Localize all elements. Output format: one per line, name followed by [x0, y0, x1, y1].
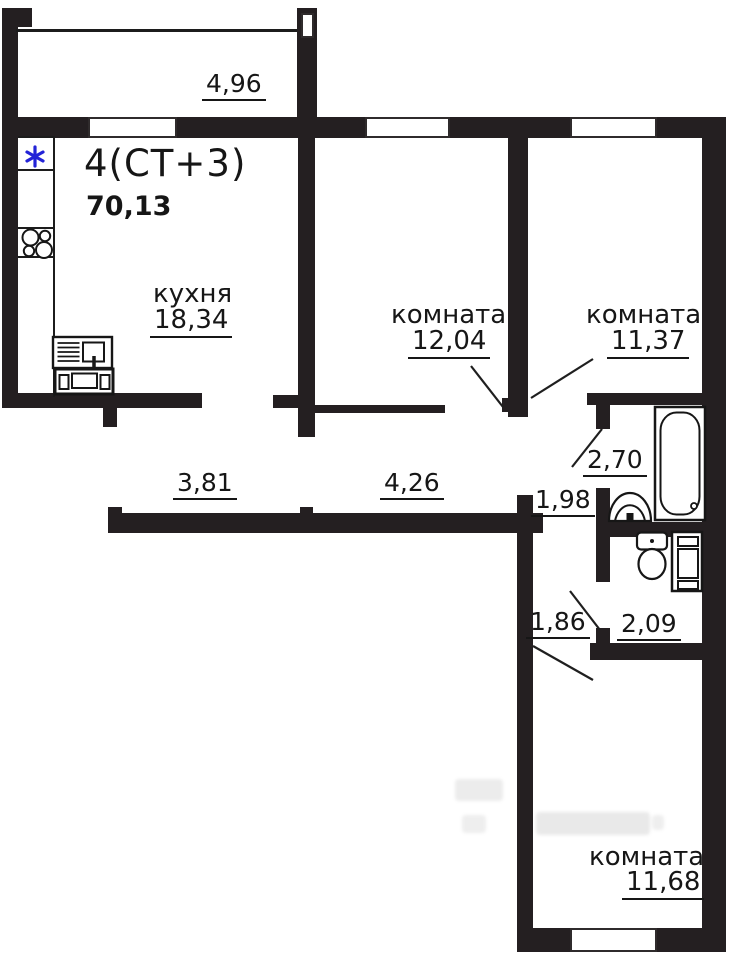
wc-dim-label: 2,09 — [617, 610, 681, 641]
watermark — [536, 812, 650, 835]
cooker-icon — [55, 369, 113, 394]
dim-value: 4,96 — [202, 70, 266, 101]
washbasin-icon — [609, 493, 651, 522]
dim-value: 1,86 — [526, 608, 590, 639]
room-area-label: 11,68 — [622, 868, 704, 900]
bath-corridor-dim-label: 1,98 — [531, 486, 595, 517]
wc-corridor-dim-label: 1,86 — [526, 608, 590, 639]
bathroom-dim-label: 2,70 — [583, 446, 647, 477]
floor-plan: 4,96 4(СТ+3) 70,13 кухня 18,34 комната 1… — [0, 0, 738, 960]
washing-machine-icon — [672, 532, 702, 591]
bathtub-icon — [655, 407, 705, 520]
watermark — [455, 779, 503, 801]
door-swing-line — [471, 366, 503, 407]
plan-title: 4(СТ+3) — [84, 143, 246, 184]
stove-burners-icon — [23, 230, 53, 259]
kitchen-sink-icon — [53, 337, 112, 368]
balcony-dim-label: 4,96 — [202, 70, 266, 101]
hallway-dim-label: 3,81 — [173, 469, 237, 500]
dim-value: 11,68 — [622, 868, 704, 900]
kitchen-area-label: 18,34 — [150, 306, 232, 338]
hallway-dim-label: 4,26 — [380, 469, 444, 500]
toilet-icon — [637, 533, 667, 580]
dim-value: 2,70 — [583, 446, 647, 477]
watermark — [462, 815, 486, 833]
dim-value: 1,98 — [531, 486, 595, 517]
dim-value: 3,81 — [173, 469, 237, 500]
dim-value: 18,34 — [150, 306, 232, 338]
asterisk-icon — [27, 147, 43, 166]
dim-value: 11,37 — [607, 327, 689, 359]
dim-value: 12,04 — [408, 327, 490, 359]
total-area-label: 70,13 — [86, 192, 171, 222]
door-swing-line — [531, 359, 593, 398]
dim-value: 4,26 — [380, 469, 444, 500]
dim-value: 2,09 — [617, 610, 681, 641]
room-area-label: 11,37 — [607, 327, 689, 359]
door-swing-line — [533, 646, 593, 680]
room-area-label: 12,04 — [408, 327, 490, 359]
watermark — [652, 815, 664, 830]
